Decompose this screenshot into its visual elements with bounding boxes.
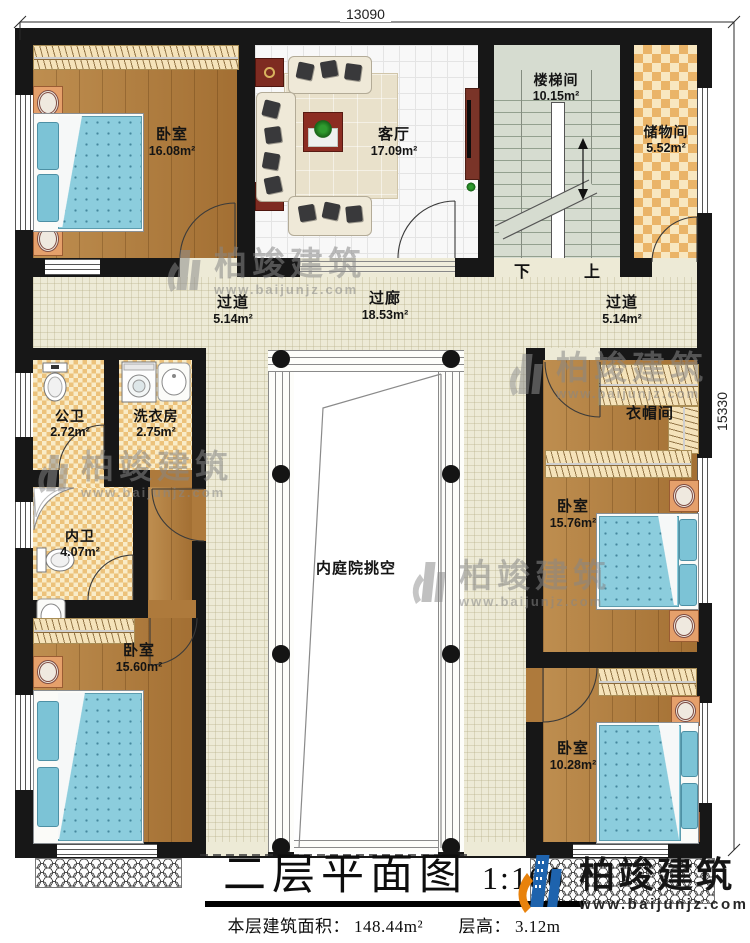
bed	[33, 690, 144, 844]
wardrobe-rack	[598, 668, 697, 696]
wardrobe-rack	[33, 618, 135, 644]
label-living: 客厅17.09m²	[371, 126, 418, 158]
courtyard-void	[294, 372, 438, 856]
sofa-bottom	[288, 196, 372, 236]
sofa-top	[288, 56, 372, 94]
roof-eave-tiles	[35, 858, 182, 888]
cloakroom-rack	[598, 364, 699, 406]
label-stairwell: 楼梯间10.15m²	[533, 72, 580, 103]
label-gallery: 过廊18.53m²	[362, 290, 409, 322]
door-opening-bedroom-right	[545, 348, 600, 360]
railing-left	[268, 372, 294, 852]
window-west-4	[15, 695, 33, 790]
pillow	[37, 122, 59, 170]
br and-name: 柏竣建筑	[579, 857, 748, 893]
pillow	[37, 174, 59, 222]
wall	[104, 360, 119, 470]
stair-center-rail	[551, 102, 565, 260]
brand-url: www.baijunjz.com	[579, 896, 748, 913]
shower-icon	[33, 487, 77, 533]
plant	[313, 119, 333, 139]
nightstand	[669, 480, 699, 512]
wall	[543, 652, 697, 668]
wall	[526, 360, 543, 845]
label-cloakroom: 衣帽间	[626, 405, 674, 423]
living-threshold	[300, 261, 455, 273]
door-opening-hallway	[192, 489, 206, 541]
cloakroom-rack	[545, 450, 692, 478]
side-table	[255, 58, 284, 87]
label-storage: 储物间5.52m²	[644, 124, 689, 155]
coffee-table	[303, 112, 343, 152]
bed-sheet	[58, 116, 106, 227]
label-bedroom-right: 卧室15.76m²	[550, 498, 597, 530]
brand-logo-icon	[513, 851, 571, 919]
window-west-1	[15, 95, 33, 230]
nightstand	[33, 656, 63, 688]
railing-right	[438, 372, 464, 852]
window-west-2	[15, 373, 33, 437]
wall	[33, 348, 206, 360]
wall	[600, 348, 697, 360]
dimension-top-label: 13090	[340, 6, 391, 22]
door-opening-storage	[652, 258, 697, 277]
stair-opening	[494, 258, 620, 277]
sink-icon	[157, 362, 191, 402]
door-opening-bedroom-tl	[180, 258, 237, 277]
label-inner-bath: 内卫4.07m²	[60, 528, 100, 559]
tv	[467, 100, 471, 158]
label-laundry: 洗衣房2.75m²	[134, 408, 179, 439]
bed	[596, 722, 699, 844]
wall	[478, 45, 494, 258]
wall	[526, 348, 545, 360]
wall	[33, 470, 59, 487]
wall	[237, 45, 255, 258]
stair-up-label: 上	[584, 258, 600, 282]
brand-logo: 柏竣建筑 www.baijunjz.com	[513, 851, 748, 919]
stair-down-label: 下	[514, 258, 530, 282]
floor-plan-page: 13090 15330	[0, 0, 750, 943]
wall	[192, 618, 206, 842]
label-public-bath: 公卫2.72m²	[50, 408, 90, 439]
door-opening-public-bath	[59, 470, 104, 487]
window-south-1	[57, 844, 157, 857]
label-bedroom-tl: 卧室16.08m²	[149, 126, 196, 158]
sofa-left	[256, 92, 296, 202]
door-opening-bedroom-bl	[148, 600, 196, 618]
wall	[133, 487, 148, 600]
hallway-left	[148, 487, 192, 600]
wardrobe-rack	[33, 45, 239, 70]
label-corridor-left: 过道5.14m²	[213, 294, 253, 326]
label-bedroom-bl: 卧室15.60m²	[116, 642, 163, 674]
railing-bottom	[294, 840, 438, 852]
window-east-1	[697, 88, 712, 213]
bed	[596, 513, 699, 610]
bed	[33, 113, 144, 232]
title-text: 二层平面图	[223, 853, 468, 898]
label-bedroom-br: 卧室10.28m²	[550, 740, 597, 772]
stair-stringer	[521, 70, 522, 258]
nightstand	[669, 610, 699, 642]
plant	[466, 182, 476, 192]
stair-stringer	[591, 70, 592, 258]
toilet-icon	[40, 362, 70, 404]
wall	[104, 470, 150, 487]
door-opening-bedroom-br	[526, 668, 543, 722]
wall	[620, 45, 634, 258]
wall	[196, 600, 206, 618]
window-east-2	[697, 458, 712, 603]
door-opening-laundry	[150, 470, 192, 487]
label-courtyard: 内庭院挑空	[316, 560, 396, 578]
window-bedroom-tl-south	[45, 259, 100, 275]
window-west-3	[15, 502, 33, 548]
railing-top	[268, 350, 464, 372]
wall	[192, 360, 206, 487]
dimension-right-label: 15330	[714, 388, 730, 435]
label-corridor-right: 过道5.14m²	[602, 294, 642, 326]
washing-machine-icon	[121, 361, 157, 403]
